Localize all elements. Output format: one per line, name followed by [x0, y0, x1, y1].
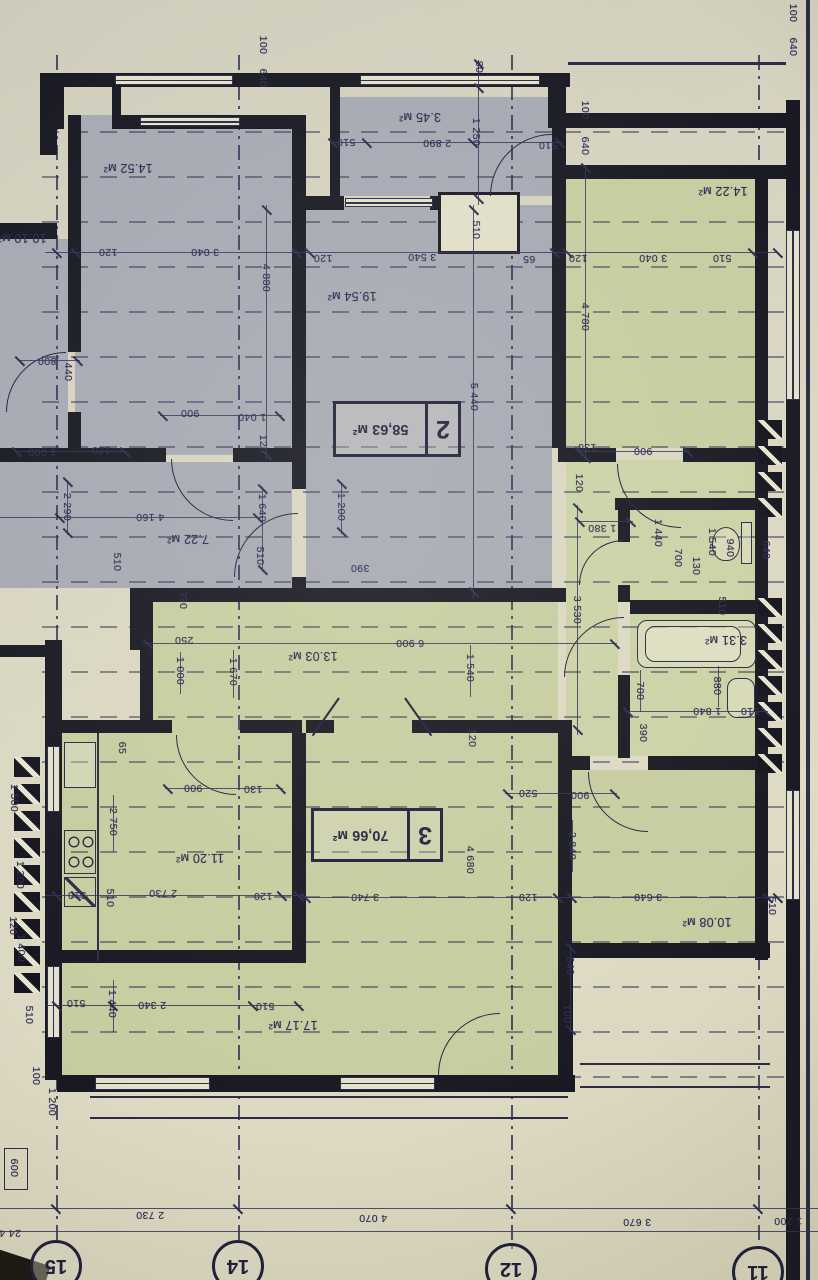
window-opening: [340, 1077, 435, 1090]
dimension-line: [266, 205, 267, 460]
vent-block: [14, 838, 40, 858]
dim-label: 1 200: [14, 861, 26, 889]
dim-label: 120: [257, 435, 269, 454]
dim-label: 1 380: [588, 522, 616, 534]
dim-label: 600: [8, 1159, 20, 1178]
dim-label: 120: [573, 474, 585, 493]
wall-segment: [618, 675, 630, 758]
dim-label: 100: [579, 101, 591, 120]
dim-label: 510: [67, 997, 86, 1009]
dim-label: 900: [181, 407, 200, 419]
window-opening: [95, 1077, 210, 1090]
dim-label: 65: [523, 253, 535, 265]
dim-label: 120: [99, 246, 118, 258]
vent-block: [758, 420, 782, 439]
dim-label: 120: [92, 444, 111, 456]
window-opening: [47, 746, 60, 812]
window-opening: [115, 75, 233, 85]
dim-label: 510: [766, 897, 778, 916]
dim-label: 640: [787, 38, 799, 57]
wall-segment: [572, 943, 770, 958]
dim-label: 120: [569, 252, 588, 264]
vent-block: [14, 811, 40, 831]
dim-label: 940: [724, 539, 736, 558]
dim-label: 510: [256, 1000, 275, 1012]
dim-label: 1 640: [256, 494, 268, 522]
room-fill: [153, 602, 558, 733]
dim-label: 1 200: [46, 1088, 58, 1116]
dim-label: 700: [634, 682, 646, 701]
room-area-label: 3.45 м²: [399, 110, 441, 124]
kitchen-stove: [64, 830, 96, 874]
dim-label: 390: [351, 562, 370, 574]
toilet-tank: [741, 522, 752, 564]
room-area-label: 17.17 м²: [268, 1018, 317, 1032]
axis-bubble-11: 11: [732, 1246, 784, 1280]
dim-label: 65: [116, 742, 128, 754]
dim-label: 510: [713, 252, 732, 264]
wall-segment: [572, 756, 590, 770]
dim-label: 1 540: [464, 654, 476, 682]
wall-segment: [552, 127, 566, 448]
apartment-area: 58,63 м²: [336, 404, 425, 454]
thin-line: [97, 733, 99, 961]
dim-label: 1 400: [15, 934, 27, 962]
wall-segment: [45, 640, 62, 702]
dim-label: 510: [539, 139, 558, 151]
window-opening: [360, 75, 540, 85]
room-fill: [566, 179, 755, 448]
dim-label: 3 670: [623, 1216, 651, 1228]
dim-label: 120: [519, 891, 538, 903]
axis-bubble-15: 15: [30, 1240, 82, 1280]
wall-segment: [130, 588, 566, 602]
dim-label: 80: [473, 61, 485, 73]
vent-block: [758, 650, 782, 669]
apartment-area: 70,66 м²: [314, 811, 407, 859]
dim-label: 120: [254, 890, 273, 902]
wall-segment: [558, 165, 788, 179]
dim-label: 1 000: [174, 657, 186, 685]
window-opening: [786, 790, 800, 900]
room-area-label: 19.54 м²: [327, 289, 376, 303]
room-fill: [0, 239, 68, 449]
dim-label: 1 250: [470, 118, 482, 146]
wall-segment: [240, 720, 302, 733]
dim-label: 130: [244, 783, 263, 795]
wall-segment: [292, 115, 306, 489]
dim-label: 1 040: [238, 411, 266, 423]
wall-segment: [140, 595, 153, 733]
axis-centerline: [238, 55, 240, 1245]
dim-label: 800: [38, 355, 57, 367]
wall-segment: [618, 585, 630, 602]
dim-label: 640: [760, 541, 772, 560]
dim-label: 130: [578, 441, 597, 453]
thin-line: [580, 1086, 770, 1088]
axis-bubble-14: 14: [212, 1240, 264, 1280]
room-area-label: 3.31 м²: [705, 633, 747, 647]
dim-label: 1 500: [8, 784, 20, 812]
dim-label: 100: [257, 36, 269, 55]
room-area-label: 14.22 м²: [698, 184, 747, 198]
dim-label: 100: [30, 1067, 42, 1086]
dim-label: 4 070: [359, 1212, 387, 1224]
dimension-line: [0, 517, 262, 518]
wall-segment: [0, 645, 47, 657]
dim-label: 2 840: [566, 832, 578, 860]
vent-block: [14, 757, 40, 777]
vent-block: [14, 973, 40, 993]
dim-label: 24 4: [0, 1227, 21, 1239]
dim-label: 3 040: [191, 246, 219, 258]
wall-segment: [302, 196, 344, 210]
dim-label: 4 780: [579, 303, 591, 331]
vent-block: [758, 676, 782, 695]
vent-block: [758, 498, 782, 517]
dim-label: 3 740: [351, 891, 379, 903]
vent-block: [758, 446, 782, 465]
dim-label: 390: [177, 591, 189, 610]
wall-segment: [40, 73, 57, 155]
dim-label: 900: [184, 782, 203, 794]
dim-label: 1 670: [227, 658, 239, 686]
wall-segment: [755, 165, 768, 458]
dim-label: 3 540: [408, 251, 436, 263]
dim-label: 1 440: [652, 519, 664, 547]
apartment-2-stamp: 258,63 м²: [333, 401, 461, 457]
dim-label: 1 840: [693, 705, 721, 717]
dim-label: 640: [257, 69, 269, 88]
dim-label: 700: [672, 549, 684, 568]
thin-line: [806, 0, 810, 1280]
dim-label: 1 200: [774, 1215, 802, 1227]
dim-label: 5 440: [468, 383, 480, 411]
dim-label: 510: [111, 553, 123, 572]
dim-label: 130: [690, 557, 702, 576]
dim-label: 4 680: [464, 846, 476, 874]
room-area-label: 10.08 м²: [682, 915, 731, 929]
thin-line: [90, 1096, 568, 1098]
dim-label: 6 900: [396, 637, 424, 649]
dim-label: 100: [561, 1005, 573, 1024]
dim-label: 640: [579, 137, 591, 156]
dim-label: 3 640: [634, 891, 662, 903]
dim-label: 1 200: [335, 493, 347, 521]
dim-label: 510: [741, 705, 760, 717]
vent-block: [758, 472, 782, 491]
dim-label: 520: [519, 787, 538, 799]
thin-line: [568, 62, 786, 65]
dim-label: 4 160: [136, 511, 164, 523]
dim-label: 100: [787, 4, 799, 23]
dim-label: 120: [466, 729, 478, 748]
dim-label: 900: [634, 445, 653, 457]
vent-block: [14, 892, 40, 912]
dim-label: 510: [470, 221, 482, 240]
floorplan-photo: 100640803.45 м²5102 8901 250510100640100…: [0, 0, 818, 1280]
dim-label: 2 730: [136, 1209, 164, 1221]
vent-block: [758, 754, 782, 773]
apartment-number: 2: [425, 404, 458, 454]
dim-label: 510: [23, 1006, 35, 1025]
dim-label: 2 290: [61, 493, 73, 521]
dim-label: 390: [637, 724, 649, 743]
dim-label: 2 890: [423, 137, 451, 149]
dim-label: 1 540: [706, 528, 718, 556]
dim-label: 880: [711, 677, 723, 696]
dim-label: 250: [175, 634, 194, 646]
wall-segment: [68, 115, 81, 352]
dim-label: 120: [314, 252, 333, 264]
wall-segment: [618, 510, 630, 542]
apartment-number: 3: [407, 811, 440, 859]
room-area-label: 11.20 м²: [176, 851, 224, 865]
room-area-label: 14.52 м²: [103, 161, 152, 175]
dim-label: 4 880: [260, 264, 272, 292]
thin-line: [580, 1063, 770, 1065]
window-opening: [140, 117, 240, 126]
window-opening: [786, 230, 800, 400]
dim-label: 440: [62, 363, 74, 382]
apartment-3-stamp: 370,66 м²: [311, 808, 443, 862]
axis-bubble-12: 12: [485, 1243, 537, 1280]
dim-label: 2 730: [149, 887, 177, 899]
dim-label: 1 440: [106, 990, 118, 1018]
vent-block: [758, 624, 782, 643]
wall-segment: [62, 720, 172, 733]
wall-segment: [412, 720, 565, 733]
dim-label: 3 530: [571, 596, 583, 624]
vent-block: [758, 728, 782, 747]
dim-label: 2 750: [107, 808, 119, 836]
window-opening: [345, 198, 433, 207]
dim-label: 510: [254, 547, 266, 566]
dimension-line: [145, 643, 617, 644]
kitchen-sink: [64, 742, 96, 788]
dim-label: 640: [564, 957, 576, 976]
dim-label: 510: [104, 889, 116, 908]
wall-segment: [630, 600, 758, 614]
dim-label: 510: [68, 889, 87, 901]
dim-label: 120: [7, 917, 19, 936]
dim-label: 510: [337, 136, 356, 148]
dim-label: 3 040: [639, 252, 667, 264]
dimension-line: [0, 1231, 818, 1232]
room-area-label: 10.10 м²: [0, 231, 47, 245]
room-area-label: 7.22 м²: [167, 532, 209, 546]
wall-segment: [292, 733, 306, 950]
thin-line: [90, 1117, 568, 1119]
room-area-label: 13.03 м²: [288, 649, 337, 663]
dim-label: 900: [571, 789, 590, 801]
dim-label: 1 000: [28, 446, 56, 458]
dimension-line: [0, 1208, 818, 1209]
wall-segment: [648, 756, 768, 770]
vent-block: [758, 598, 782, 617]
dim-label: 510: [716, 597, 728, 616]
dim-label: 2 340: [138, 999, 166, 1011]
